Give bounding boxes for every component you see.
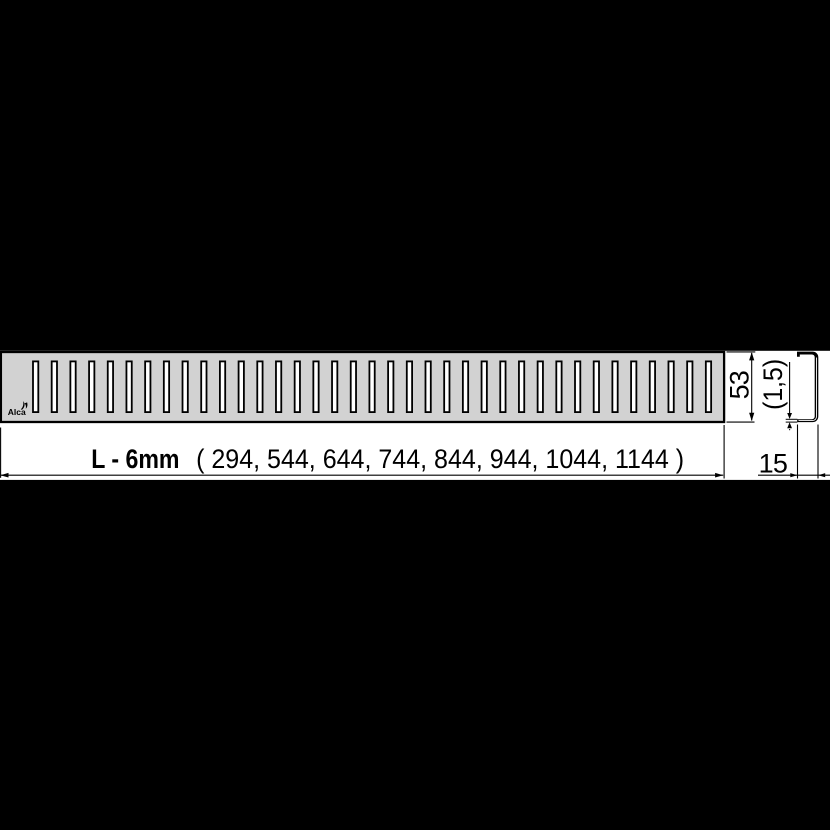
svg-text:53: 53 [725, 371, 755, 399]
svg-text:15: 15 [759, 448, 787, 478]
svg-text:L - 6mm: L - 6mm [91, 444, 179, 474]
svg-text:(1,5): (1,5) [758, 359, 788, 410]
svg-text:( 294, 544, 644, 744, 844, 944: ( 294, 544, 644, 744, 844, 944, 1044, 11… [196, 444, 684, 474]
